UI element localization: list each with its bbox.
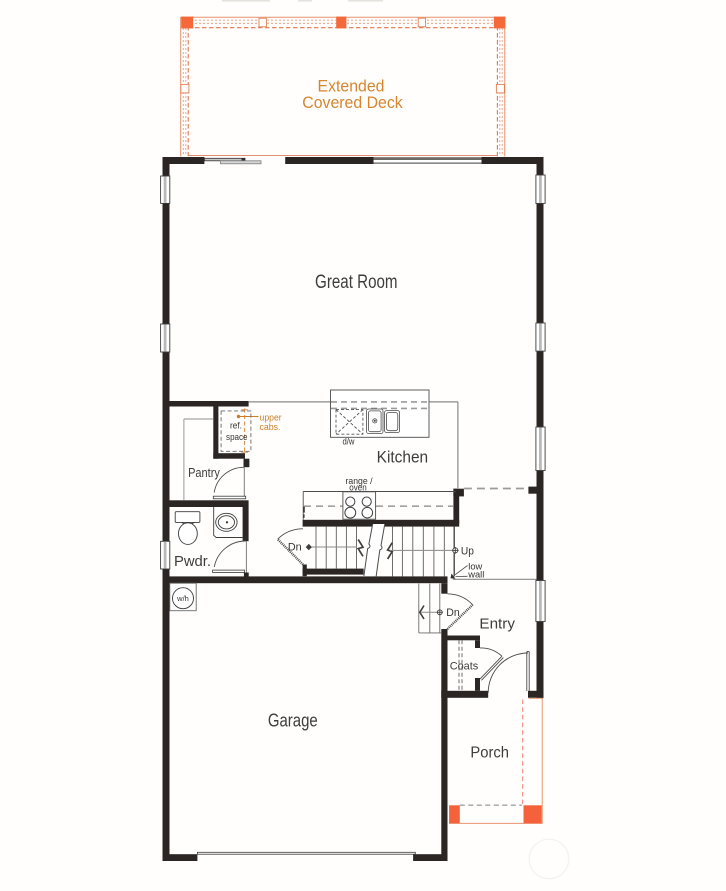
svg-text:Coats: Coats: [450, 660, 479, 672]
svg-text:oven: oven: [349, 483, 367, 493]
svg-text:Pwdr.: Pwdr.: [174, 553, 211, 570]
svg-text:Extended: Extended: [318, 78, 385, 96]
svg-text:Kitchen: Kitchen: [377, 448, 429, 467]
svg-text:Dn: Dn: [288, 541, 302, 553]
svg-text:Porch: Porch: [470, 744, 509, 761]
svg-text:Pantry: Pantry: [188, 466, 220, 480]
svg-text:d/w: d/w: [343, 437, 355, 447]
svg-text:ref.: ref.: [230, 421, 242, 432]
svg-text:space: space: [226, 432, 248, 443]
svg-text:wall: wall: [467, 569, 484, 579]
svg-text:Up: Up: [461, 546, 474, 558]
svg-text:Covered Deck: Covered Deck: [302, 94, 403, 112]
svg-text:Dn: Dn: [446, 607, 460, 619]
svg-text:cabs.: cabs.: [260, 422, 281, 433]
svg-text:Great Room: Great Room: [315, 272, 398, 293]
svg-text:Garage: Garage: [268, 710, 318, 730]
svg-text:w/h: w/h: [176, 594, 189, 603]
svg-text:Entry: Entry: [479, 617, 515, 633]
